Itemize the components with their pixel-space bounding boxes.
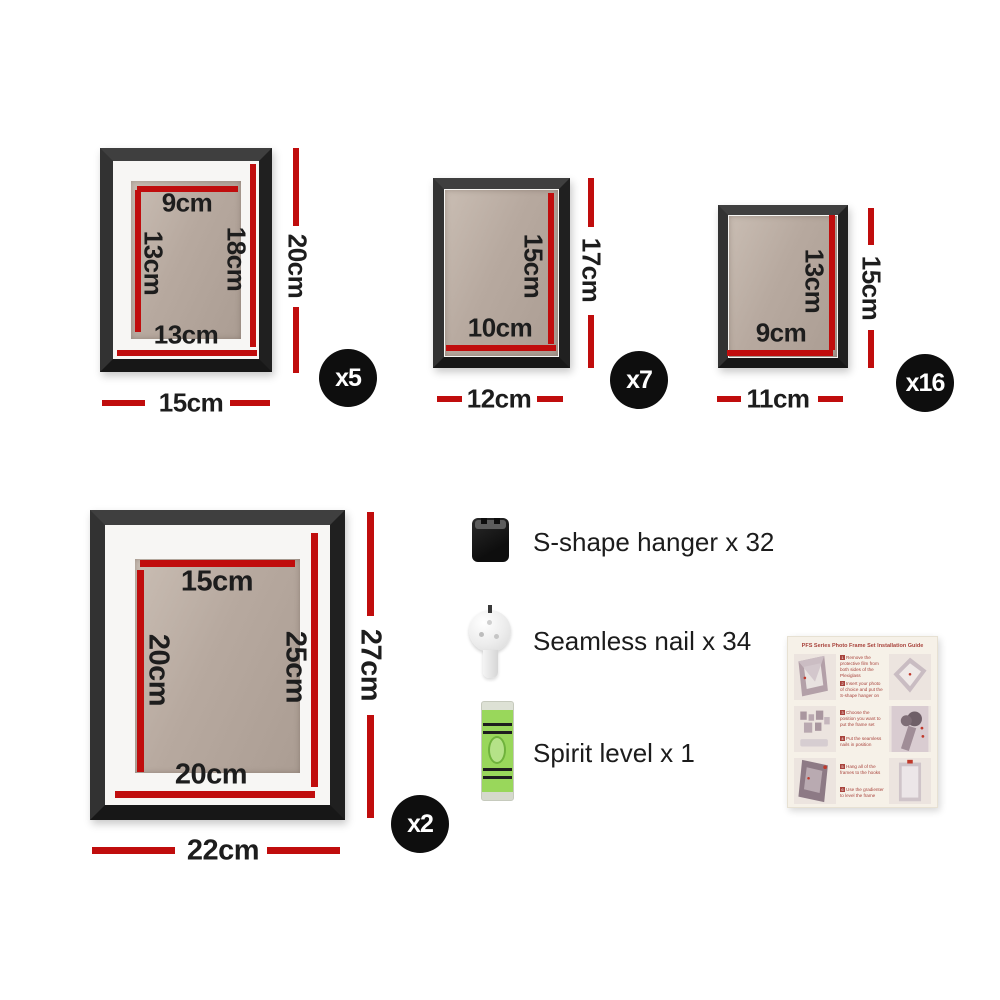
dimension-line [102, 400, 145, 406]
dimension-line [311, 533, 318, 787]
step-number: 1 [840, 655, 845, 660]
dimension-line [818, 396, 843, 402]
step-number: 4 [840, 736, 845, 741]
step-text: Use the gradienter to level the frame [840, 787, 884, 798]
guide-illustration-frame-back [889, 654, 931, 700]
outer-width-label: 22cm [187, 835, 259, 868]
seamless-nail-stem [483, 650, 498, 678]
guide-title: PFS Series Photo Frame Set Installation … [788, 637, 937, 651]
step-text: Choose the position you want to put the … [840, 710, 881, 726]
dimension-line [868, 208, 874, 245]
quantity-badge: x5 [319, 349, 377, 407]
guide-steps-5-6: 5Hang all of the frames to the hooks 6Us… [839, 758, 886, 804]
quantity-badge: x16 [896, 354, 954, 412]
dimension-line [548, 193, 554, 344]
opening-height-label: 13cm [138, 231, 169, 296]
dimension-line [367, 512, 374, 616]
installation-guide-card: PFS Series Photo Frame Set Installation … [787, 636, 938, 808]
dimension-line [588, 178, 594, 227]
dimension-line [446, 345, 556, 351]
opening-height-label: 20cm [142, 634, 175, 706]
dimension-line [117, 350, 257, 356]
hanger-label: S-shape hanger x 32 [533, 527, 774, 558]
guide-steps-3-4: 3Choose the position you want to put the… [839, 706, 886, 752]
product-diagram: 9cm 13cm 18cm 13cm 20cm 15cm x5 15cm 10c… [0, 0, 1000, 1000]
quantity-badge: x2 [391, 795, 449, 853]
quantity-badge: x7 [610, 351, 668, 409]
guide-illustration-peel-film [794, 654, 836, 700]
dimension-line [588, 315, 594, 368]
outer-width-label: 15cm [159, 388, 224, 419]
step-text: Hang all of the frames to the hooks [840, 764, 880, 775]
step-text: Remove the protective film from both sid… [840, 655, 879, 677]
dimension-line [367, 715, 374, 818]
guide-row: 5Hang all of the frames to the hooks 6Us… [788, 755, 937, 807]
guide-illustration-hang-frame [794, 758, 836, 804]
step-text: Insert your photo of choice and put the … [840, 681, 883, 697]
photo-height-label: 15cm [518, 234, 549, 299]
dimension-line [717, 396, 741, 402]
outer-height-label: 27cm [354, 629, 387, 701]
guide-illustration-hammer-nail [889, 706, 931, 752]
step-text: Put the seamless nails in position [840, 736, 881, 747]
dimension-line [293, 307, 299, 373]
photo-width-label: 10cm [468, 313, 533, 344]
nail-label: Seamless nail x 34 [533, 626, 751, 657]
step-number: 5 [840, 764, 845, 769]
dimension-line [293, 148, 299, 226]
opening-width-label: 9cm [162, 188, 213, 219]
guide-row: 1Remove the protective film from both si… [788, 651, 937, 703]
guide-row: 3Choose the position you want to put the… [788, 703, 937, 755]
mat-width-label: 13cm [154, 320, 219, 351]
dimension-line [437, 396, 462, 402]
guide-steps-1-2: 1Remove the protective film from both si… [839, 654, 886, 700]
outer-width-label: 11cm [746, 384, 809, 415]
outer-height-label: 20cm [282, 234, 313, 299]
step-number: 3 [840, 710, 845, 715]
mat-width-label: 20cm [175, 759, 247, 792]
dimension-line [92, 847, 175, 854]
dimension-line [230, 400, 270, 406]
photo-width-label: 9cm [756, 318, 807, 349]
outer-height-label: 15cm [856, 256, 887, 321]
mat-height-label: 25cm [279, 631, 312, 703]
dimension-line [267, 847, 340, 854]
outer-height-label: 17cm [576, 238, 607, 303]
dimension-line [727, 350, 833, 356]
dimension-line [537, 396, 563, 402]
guide-illustration-wall-layout [794, 706, 836, 752]
mat-height-label: 18cm [221, 227, 252, 292]
dimension-line [829, 215, 835, 350]
level-label: Spirit level x 1 [533, 738, 695, 769]
spirit-level-bubble [488, 736, 506, 764]
opening-width-label: 15cm [181, 566, 253, 599]
photo-height-label: 13cm [799, 249, 830, 314]
dimension-line [868, 330, 874, 368]
s-shape-hanger-icon [472, 518, 509, 562]
seamless-nail-icon [469, 610, 511, 652]
step-number: 6 [840, 787, 845, 792]
step-number: 2 [840, 681, 845, 686]
outer-width-label: 12cm [467, 384, 532, 415]
dimension-line [115, 791, 315, 798]
guide-illustration-level-frame [889, 758, 931, 804]
